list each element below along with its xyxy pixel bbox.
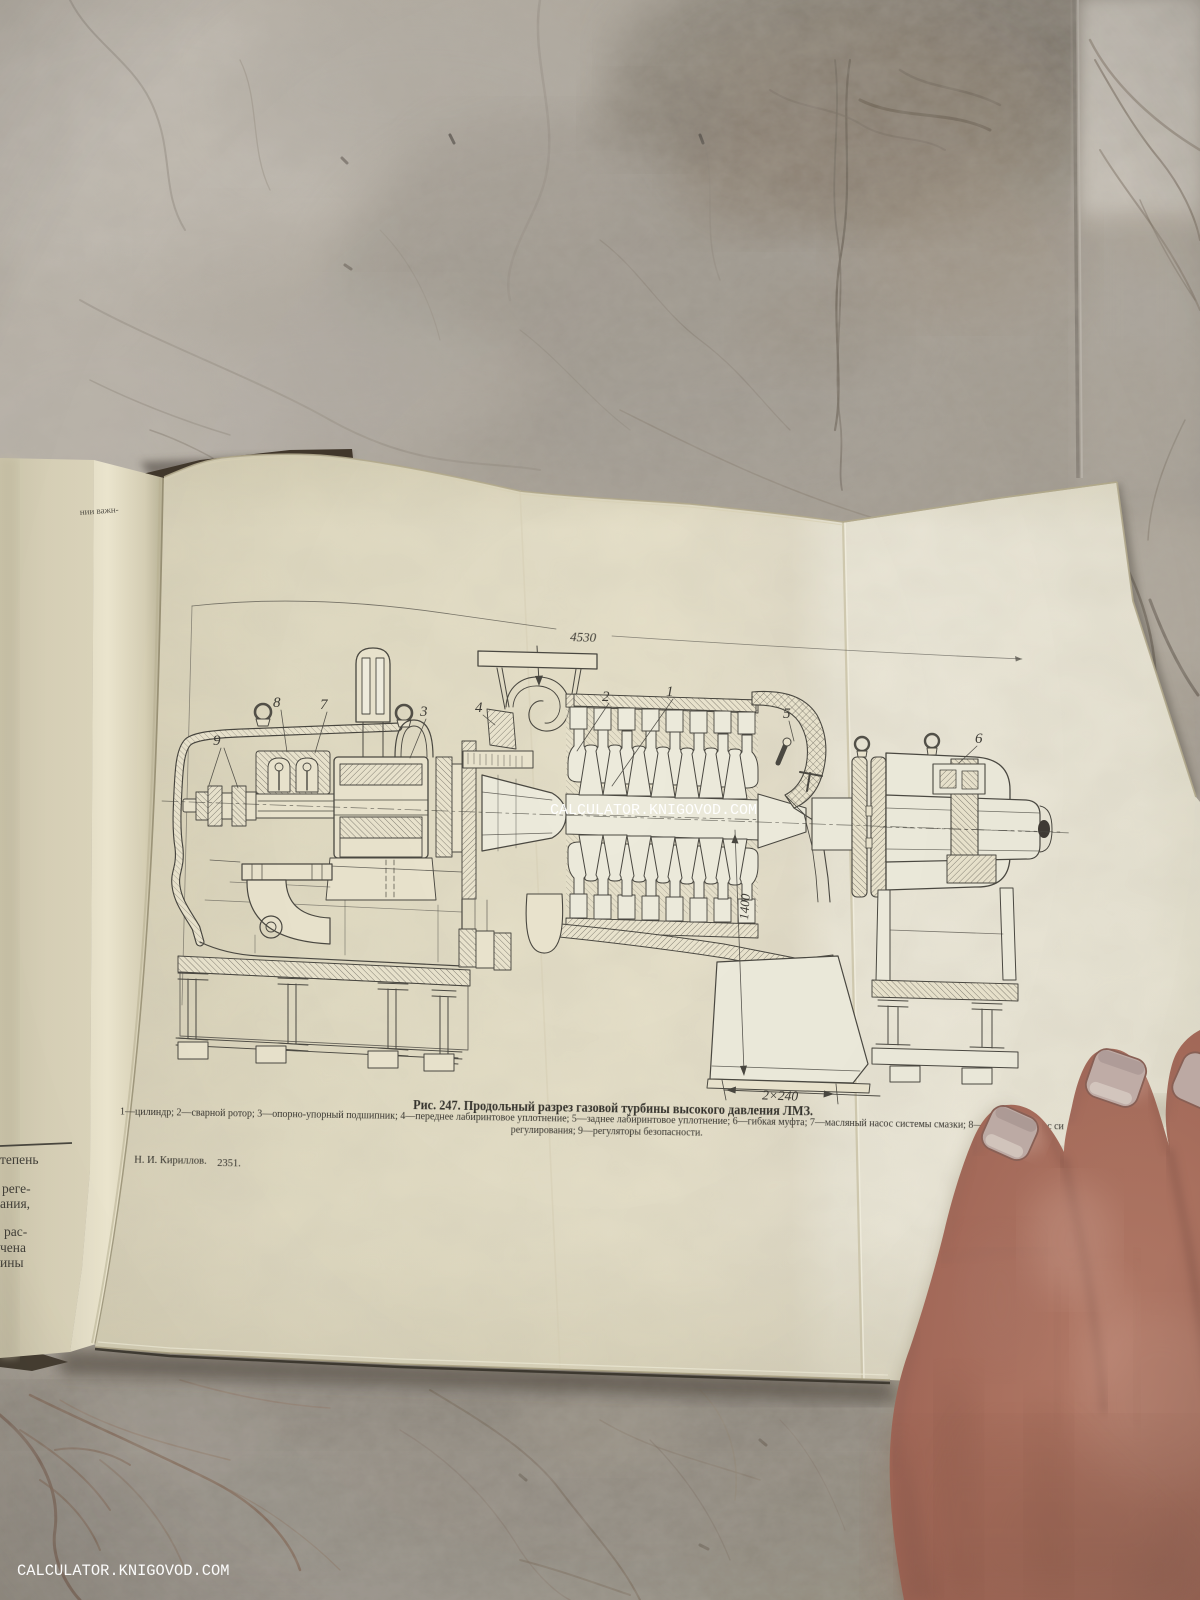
svg-text:CALCULATOR.KNIGOVOD.COM: CALCULATOR.KNIGOVOD.COM xyxy=(17,1562,229,1580)
svg-text:CALCULATOR.KNIGOVOD.COM: CALCULATOR.KNIGOVOD.COM xyxy=(550,802,757,819)
